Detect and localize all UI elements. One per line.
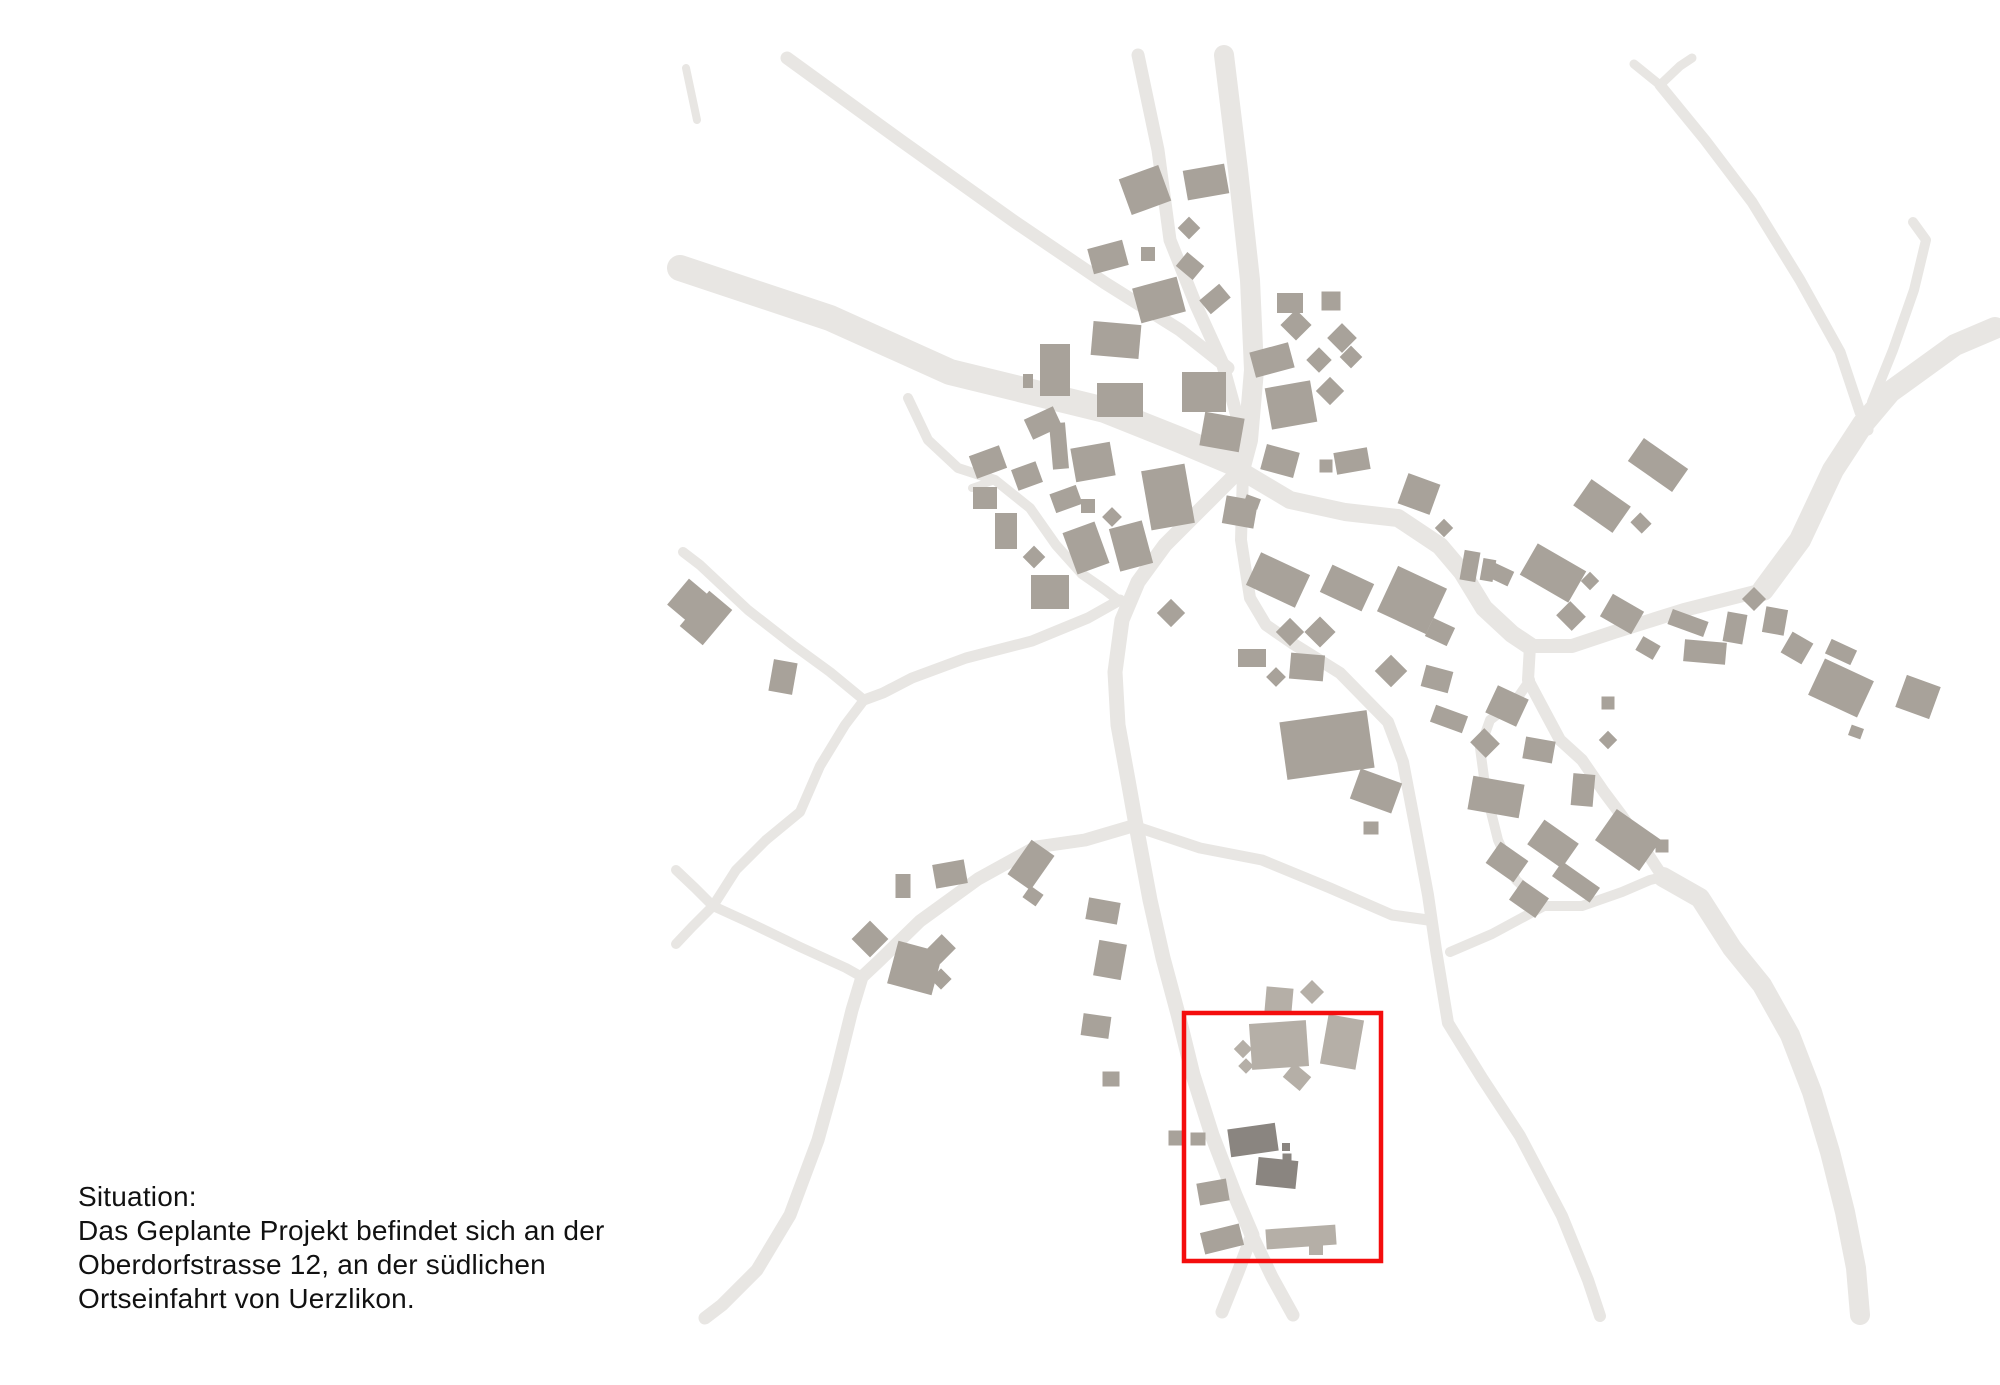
building-footprint bbox=[973, 487, 997, 509]
building-footprint bbox=[1266, 667, 1286, 687]
building-footprint bbox=[1467, 776, 1524, 819]
road bbox=[766, 700, 864, 840]
building-footprint bbox=[1520, 543, 1586, 602]
building-footprint bbox=[1289, 653, 1325, 682]
building-footprint bbox=[1157, 599, 1185, 627]
building-footprint bbox=[768, 659, 797, 695]
building-footprint bbox=[1049, 485, 1082, 513]
building-footprint bbox=[1031, 575, 1069, 609]
building-footprint bbox=[1265, 1225, 1336, 1250]
building-footprint bbox=[896, 874, 911, 898]
building-footprint bbox=[1848, 725, 1864, 740]
building-footprint bbox=[1556, 601, 1586, 631]
road bbox=[1634, 64, 1660, 85]
building-footprint bbox=[1277, 293, 1303, 313]
building-footprint bbox=[1522, 737, 1555, 764]
caption-line: Ortseinfahrt von Uerzlikon. bbox=[78, 1282, 658, 1316]
building-footprint bbox=[1011, 461, 1043, 491]
building-footprint bbox=[1049, 422, 1069, 469]
building-footprint bbox=[1320, 460, 1333, 473]
building-footprint bbox=[1460, 550, 1481, 582]
building-footprint bbox=[1022, 886, 1043, 907]
building-footprint bbox=[1283, 1154, 1292, 1163]
building-footprint bbox=[1599, 731, 1617, 749]
building-footprint bbox=[1304, 616, 1335, 647]
building-footprint bbox=[1249, 1020, 1309, 1070]
building-footprint bbox=[1141, 464, 1195, 531]
building-footprint bbox=[1222, 495, 1258, 528]
building-footprint bbox=[1398, 473, 1441, 515]
building-footprint bbox=[1630, 512, 1651, 533]
building-footprint bbox=[1234, 1040, 1252, 1058]
building-footprint bbox=[1109, 520, 1153, 571]
building-footprint bbox=[1300, 980, 1324, 1004]
building-footprint bbox=[1087, 240, 1129, 274]
road bbox=[972, 480, 995, 488]
building-footprint bbox=[1103, 1072, 1120, 1087]
road bbox=[1663, 877, 1860, 1315]
building-footprint bbox=[1141, 247, 1155, 261]
building-footprint bbox=[1040, 344, 1070, 396]
building-footprint bbox=[1178, 217, 1201, 240]
building-footprint bbox=[1375, 655, 1408, 688]
building-footprint bbox=[1070, 442, 1115, 482]
building-footprint bbox=[1279, 710, 1374, 780]
road bbox=[1660, 58, 1692, 85]
building-footprint bbox=[1527, 820, 1579, 869]
building-footprint bbox=[1132, 277, 1186, 324]
building-footprint bbox=[1430, 705, 1468, 734]
building-footprint bbox=[1200, 1223, 1244, 1254]
building-footprint bbox=[1333, 447, 1370, 475]
building-footprint bbox=[1238, 649, 1266, 667]
building-footprint bbox=[1470, 728, 1500, 758]
building-footprint bbox=[1227, 1123, 1278, 1157]
building-footprint bbox=[1762, 606, 1788, 635]
building-footprint bbox=[1183, 164, 1230, 201]
building-footprint bbox=[1191, 1133, 1206, 1146]
building-footprint bbox=[1256, 1157, 1299, 1189]
caption-line: Oberdorfstrasse 12, an der südlichen bbox=[78, 1248, 658, 1282]
building-footprint bbox=[1264, 986, 1293, 1013]
building-footprint bbox=[1895, 675, 1940, 719]
building-footprint bbox=[1023, 546, 1046, 569]
building-footprint bbox=[1320, 1014, 1364, 1069]
building-footprint bbox=[1169, 1131, 1184, 1146]
building-footprint bbox=[1265, 380, 1318, 429]
building-footprint bbox=[1260, 444, 1300, 478]
building-footprint bbox=[1656, 840, 1669, 853]
building-footprint bbox=[1091, 321, 1142, 359]
building-footprint bbox=[1238, 1058, 1254, 1074]
caption-line: Das Geplante Projekt befindet sich an de… bbox=[78, 1214, 658, 1248]
building-footprint bbox=[1573, 479, 1631, 533]
building-footprint bbox=[1808, 658, 1874, 717]
site-plan-map bbox=[0, 0, 2000, 1385]
building-footprint bbox=[1102, 507, 1122, 527]
road bbox=[1763, 328, 1995, 590]
building-footprint bbox=[1316, 377, 1344, 405]
building-footprint bbox=[1097, 383, 1143, 417]
building-footprint bbox=[1552, 861, 1600, 902]
building-footprint bbox=[1683, 639, 1727, 665]
building-footprint bbox=[1602, 697, 1615, 710]
building-footprint bbox=[1635, 636, 1660, 660]
building-footprint bbox=[1182, 372, 1226, 412]
building-footprint bbox=[1306, 347, 1331, 372]
building-footprint bbox=[1081, 1013, 1112, 1039]
building-footprint bbox=[1282, 1143, 1290, 1151]
roads-layer bbox=[676, 55, 1995, 1318]
building-footprint bbox=[1781, 632, 1814, 665]
building-footprint bbox=[1364, 822, 1379, 835]
building-footprint bbox=[1309, 1245, 1323, 1255]
building-footprint bbox=[1320, 565, 1374, 612]
building-footprint bbox=[1571, 773, 1596, 807]
road bbox=[705, 825, 1136, 1318]
building-footprint bbox=[995, 513, 1017, 549]
building-footprint bbox=[1723, 611, 1748, 644]
building-footprint bbox=[1350, 768, 1402, 813]
road bbox=[686, 68, 697, 120]
building-footprint bbox=[1199, 412, 1244, 452]
building-footprint bbox=[1196, 1179, 1229, 1206]
building-footprint bbox=[1280, 309, 1311, 340]
building-footprint bbox=[1023, 374, 1033, 388]
building-footprint bbox=[1322, 292, 1341, 311]
page: Situation: Das Geplante Projekt befindet… bbox=[0, 0, 2000, 1385]
road bbox=[864, 600, 1120, 700]
building-footprint bbox=[1486, 842, 1529, 883]
building-footprint bbox=[1421, 665, 1454, 693]
building-footprint bbox=[1081, 499, 1095, 513]
road bbox=[1660, 85, 1868, 430]
caption: Situation: Das Geplante Projekt befindet… bbox=[78, 1180, 658, 1316]
road bbox=[1140, 828, 1428, 920]
caption-title: Situation: bbox=[78, 1180, 658, 1214]
road bbox=[676, 870, 862, 977]
building-footprint bbox=[1093, 940, 1127, 980]
building-footprint bbox=[1628, 438, 1688, 492]
building-footprint bbox=[1085, 897, 1120, 924]
